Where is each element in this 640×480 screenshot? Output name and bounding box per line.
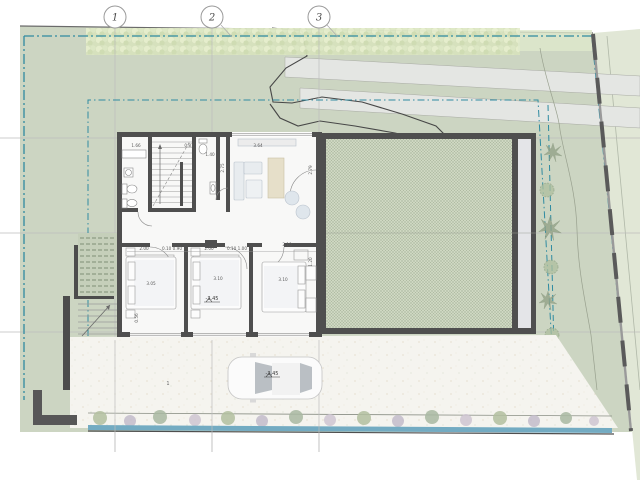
bush-tree-icon — [544, 260, 558, 274]
car-roof — [272, 363, 300, 395]
level-label: -3.45 — [266, 371, 279, 377]
hedge-row — [86, 28, 592, 55]
dimension-label: 1.66 — [131, 143, 141, 148]
dimension-label: 2.75 — [220, 163, 225, 173]
dimension-label: 3.05 — [146, 281, 156, 286]
driveway — [70, 335, 618, 428]
roof-terrace — [322, 133, 536, 334]
dimension-label: 0.10 0.90 — [162, 246, 182, 251]
dimension-label: 0.87 — [184, 143, 194, 148]
grid-bubble-label: 1 — [112, 13, 118, 24]
dimension-label: 2.79 — [308, 165, 313, 175]
grid-bubble-label: 3 — [316, 13, 322, 24]
dimension-label: 2.10 — [282, 242, 292, 247]
dimension-label: 3.10 — [213, 276, 223, 281]
dimension-label: 3.64 — [253, 143, 263, 148]
lightwell — [518, 139, 531, 328]
level-label: -3.45 — [206, 296, 219, 302]
plan-svg: 1.66 0.87 3.64 1.40 2.75 2.79 2.00 0.10 … — [0, 0, 640, 480]
hatched-terrace — [326, 139, 512, 328]
dimension-label: 1.40 — [205, 152, 215, 157]
car — [228, 353, 322, 403]
dimension-label: 0.10 1.00 — [227, 246, 247, 251]
bush-tree-icon — [540, 183, 554, 197]
grid-bubble-label: 2 — [208, 13, 215, 24]
car-rear-window — [300, 363, 312, 393]
dimension-label: 2.00 — [204, 246, 214, 251]
car-windshield — [255, 362, 272, 394]
dimension-label: 0.56 — [134, 313, 139, 323]
kitchen-island — [268, 158, 284, 198]
dimension-label: 1.20 — [308, 257, 313, 267]
dimension-label: 3.10 — [278, 277, 288, 282]
dimension-label: 2.00 — [139, 246, 149, 251]
retaining-wall — [63, 296, 70, 390]
house-floor-plan — [117, 132, 322, 337]
site-plan-drawing: 1.66 0.87 3.64 1.40 2.75 2.79 2.00 0.10 … — [0, 0, 640, 480]
zone-label: 1 — [166, 381, 169, 387]
